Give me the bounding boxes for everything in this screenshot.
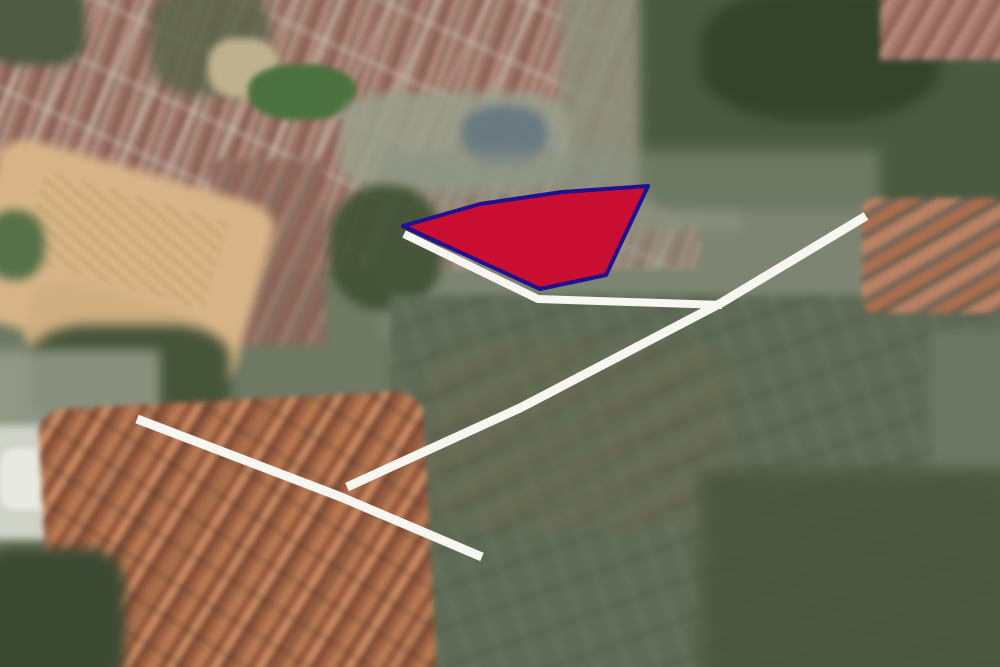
annotation-layer	[0, 0, 1000, 667]
highlighted-parcel[interactable]	[403, 186, 648, 289]
map-canvas[interactable]	[0, 0, 1000, 667]
cross-road[interactable]	[137, 419, 482, 557]
